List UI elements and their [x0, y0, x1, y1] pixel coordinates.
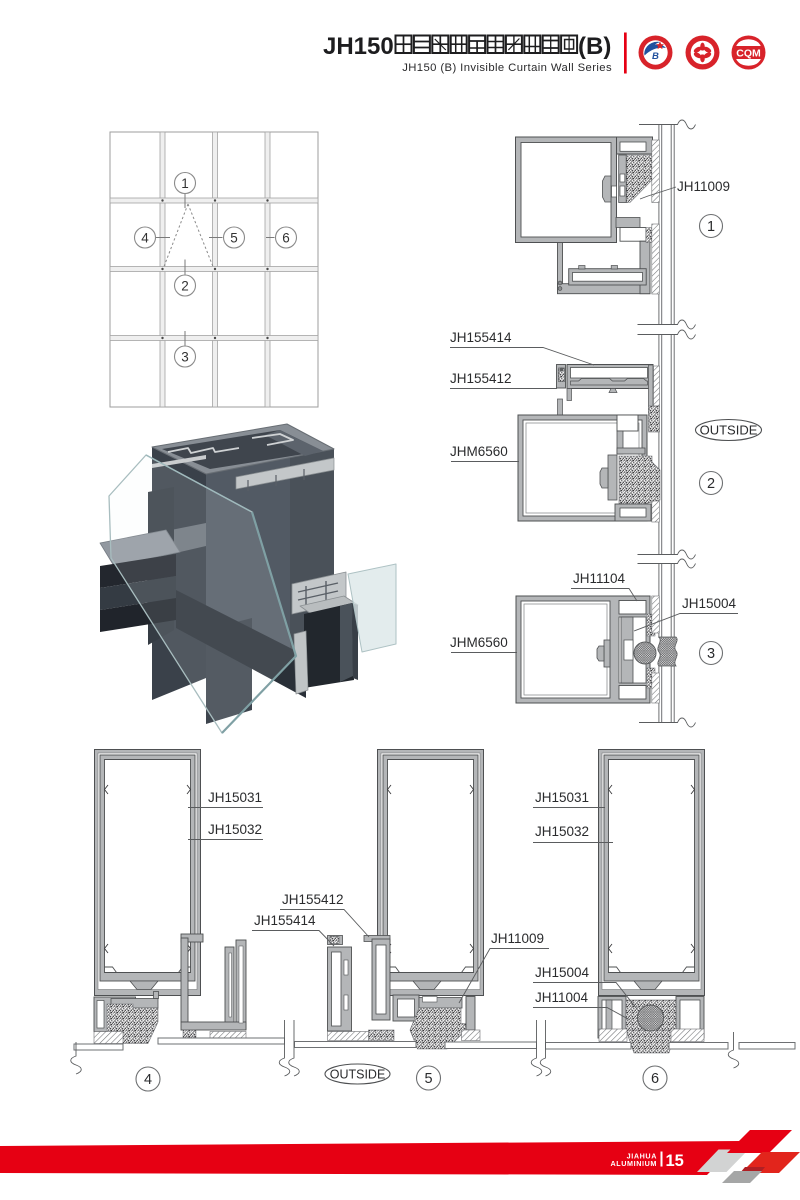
svg-text:JH15031: JH15031 — [535, 790, 589, 805]
svg-text:5: 5 — [424, 1071, 432, 1087]
svg-text:JH155414: JH155414 — [254, 913, 316, 928]
svg-text:JHM6560: JHM6560 — [450, 635, 508, 650]
svg-text:JH155412: JH155412 — [282, 892, 344, 907]
svg-text:JH11104: JH11104 — [573, 571, 626, 586]
svg-text:JH150: JH150 — [323, 33, 394, 60]
svg-text:5: 5 — [230, 231, 238, 246]
svg-text:OUTSIDE: OUTSIDE — [700, 423, 758, 438]
svg-text:JH11009: JH11009 — [491, 931, 544, 946]
svg-text:1: 1 — [707, 219, 715, 235]
svg-text:3: 3 — [707, 646, 715, 662]
svg-text:JH11009: JH11009 — [677, 179, 730, 194]
svg-text:1: 1 — [181, 176, 189, 191]
svg-text:ALUMINIUM: ALUMINIUM — [610, 1159, 657, 1168]
svg-text:JH15031: JH15031 — [208, 790, 262, 805]
svg-text:JH155412: JH155412 — [450, 371, 512, 386]
svg-text:(B): (B) — [578, 33, 611, 60]
svg-text:JHM6560: JHM6560 — [450, 444, 508, 459]
svg-text:6: 6 — [651, 1071, 659, 1087]
svg-text:15: 15 — [666, 1152, 684, 1170]
svg-text:JH15032: JH15032 — [208, 822, 262, 837]
svg-text:4: 4 — [141, 231, 149, 246]
svg-text:JH15032: JH15032 — [535, 824, 589, 839]
svg-text:JH11004: JH11004 — [535, 990, 589, 1005]
svg-text:2: 2 — [181, 279, 189, 294]
svg-text:CQM: CQM — [736, 47, 761, 59]
svg-text:OUTSIDE: OUTSIDE — [330, 1068, 386, 1082]
svg-text:6: 6 — [282, 231, 290, 246]
svg-text:3: 3 — [181, 350, 189, 365]
svg-text:JH150 (B) Invisible Curtain: JH150 (B) Invisible Curtain Wall Series — [402, 62, 612, 74]
svg-text:2: 2 — [707, 476, 715, 492]
svg-text:JH15004: JH15004 — [535, 965, 590, 980]
svg-text:JH155414: JH155414 — [450, 330, 512, 345]
svg-text:4: 4 — [144, 1072, 152, 1088]
svg-text:B: B — [652, 51, 659, 62]
svg-text:JH15004: JH15004 — [682, 596, 737, 611]
